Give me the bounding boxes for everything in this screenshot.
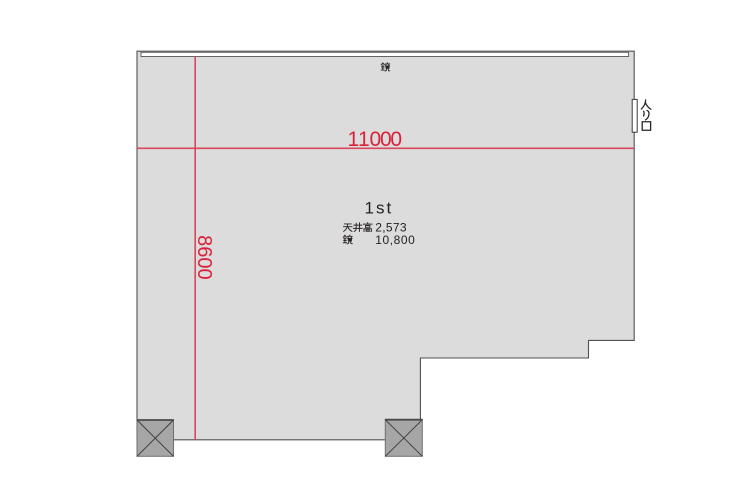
svg-text:11000: 11000 (348, 128, 403, 151)
svg-text:8600: 8600 (193, 235, 215, 280)
svg-text:10,800: 10,800 (375, 233, 415, 247)
svg-text:1st: 1st (365, 199, 394, 218)
